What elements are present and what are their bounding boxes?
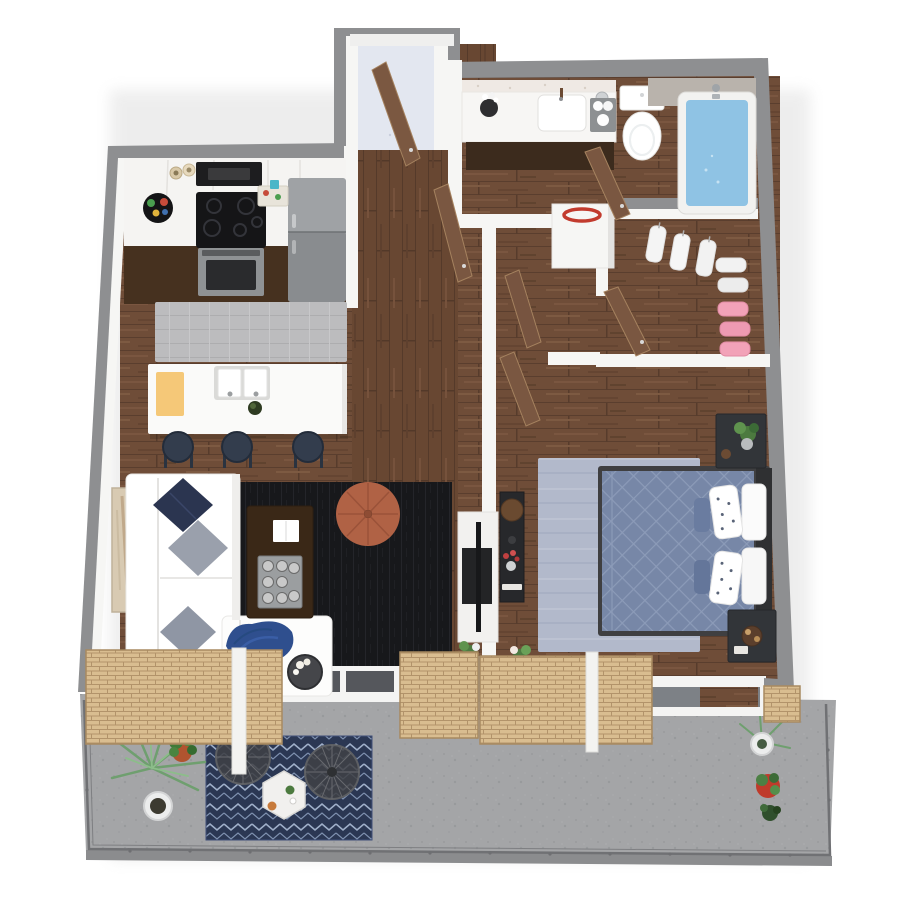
kitchen: Kitchen: [124, 158, 348, 468]
bedroom-console: [500, 492, 524, 602]
cooktop: [196, 192, 266, 248]
laundry-closet: Laundry Closet: [552, 204, 614, 268]
kitchen-hall-wall: [344, 146, 358, 308]
tub-water: [686, 100, 748, 206]
privacy-screen-left: [86, 650, 282, 744]
entry-right-jamb: [434, 36, 448, 150]
towel-caddy: [590, 98, 616, 132]
pink-garment: [718, 302, 748, 316]
blue-accent-cushion: [694, 498, 710, 532]
coffee-table: [247, 506, 313, 618]
privacy-screen-far-right: [764, 686, 800, 722]
entry-threshold: [350, 34, 454, 46]
tv-screen-edge: [476, 522, 481, 632]
nightstand-north: [716, 414, 766, 468]
privacy-screen-right: [480, 656, 652, 744]
round-side-table: [288, 655, 322, 689]
bedroom-north-wall: [548, 352, 600, 365]
floor-plan-canvas: 3D rendered top-down floor plan of a one…: [0, 0, 900, 900]
entry-left-jamb: [346, 36, 358, 148]
yellow-cutting-board: [156, 372, 184, 416]
kitchen-top-wall: [108, 143, 348, 160]
cup-tray: [258, 556, 302, 608]
bathroom-south-wall: [458, 214, 556, 228]
floor-plan-render: 3D rendered top-down floor plan of a one…: [0, 0, 900, 900]
pouf: [336, 482, 400, 546]
kitchen-island: [148, 364, 347, 434]
balcony-beam-right: [586, 652, 598, 752]
shower-fixture: [712, 84, 720, 92]
balcony-beam-left: [232, 648, 246, 774]
privacy-screen-center: [400, 652, 478, 738]
pink-garment: [720, 342, 750, 356]
island-double-sink: [214, 366, 270, 400]
blue-accent-cushion: [694, 560, 710, 594]
kitchen-runner-rug: [155, 302, 347, 362]
oven: [198, 248, 264, 296]
washer: [552, 204, 614, 268]
refrigerator: [288, 178, 346, 302]
nightstand-south: [728, 610, 776, 662]
entry-left-wall: [334, 28, 348, 146]
serving-tray: [143, 193, 173, 223]
pink-garment: [720, 322, 750, 336]
balcony-wire-chair-right: [305, 745, 359, 799]
media-console-tv: [458, 512, 498, 642]
